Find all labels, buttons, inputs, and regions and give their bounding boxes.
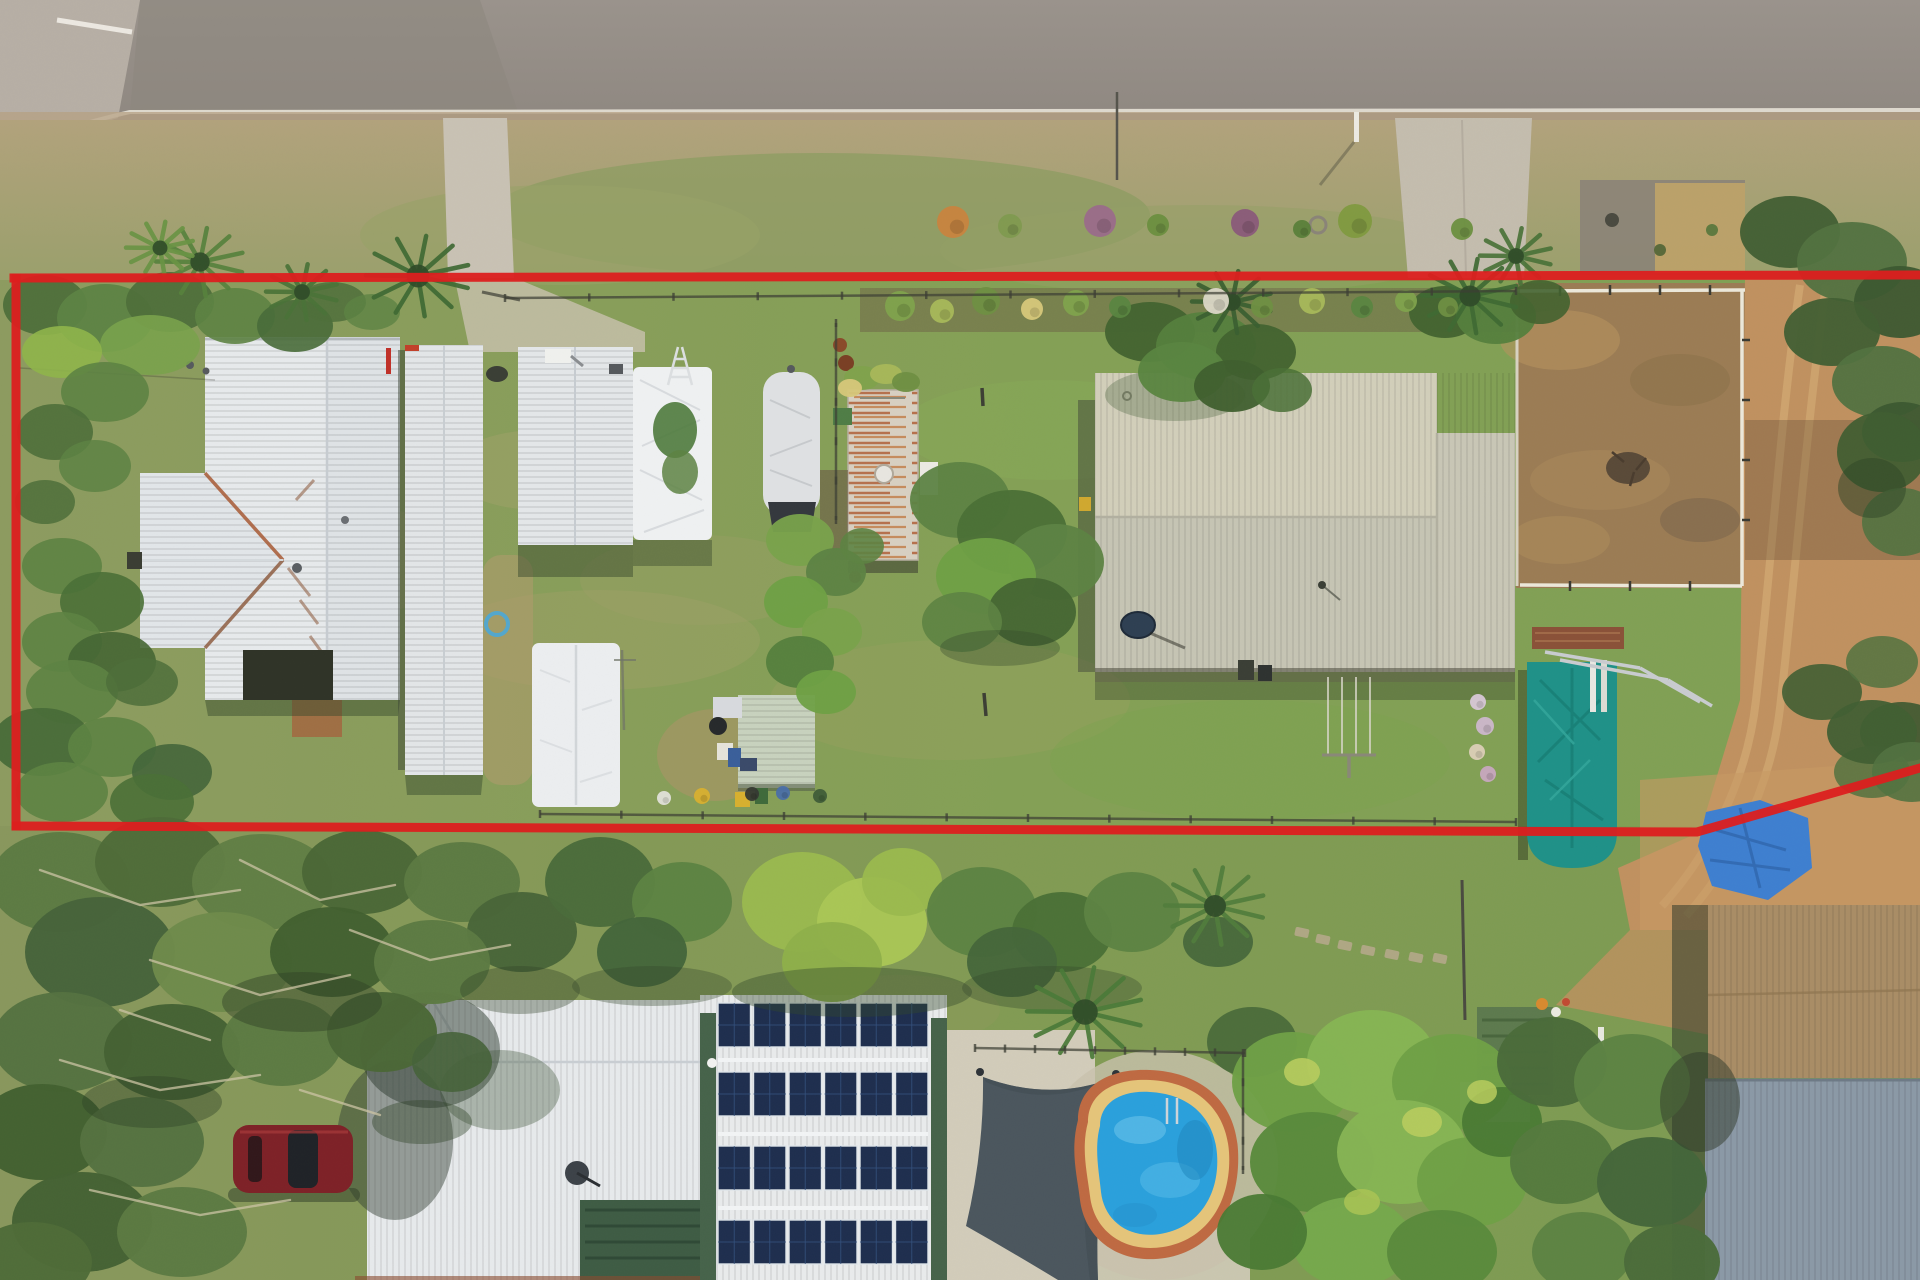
aerial-property-photo: Aerial drone photo of a rural residentia… xyxy=(0,0,1920,1280)
aerial-photo-stage: Aerial drone photo of a rural residentia… xyxy=(0,0,1920,1280)
boundary-segment xyxy=(14,275,1920,278)
photo-grain xyxy=(0,0,1920,1280)
